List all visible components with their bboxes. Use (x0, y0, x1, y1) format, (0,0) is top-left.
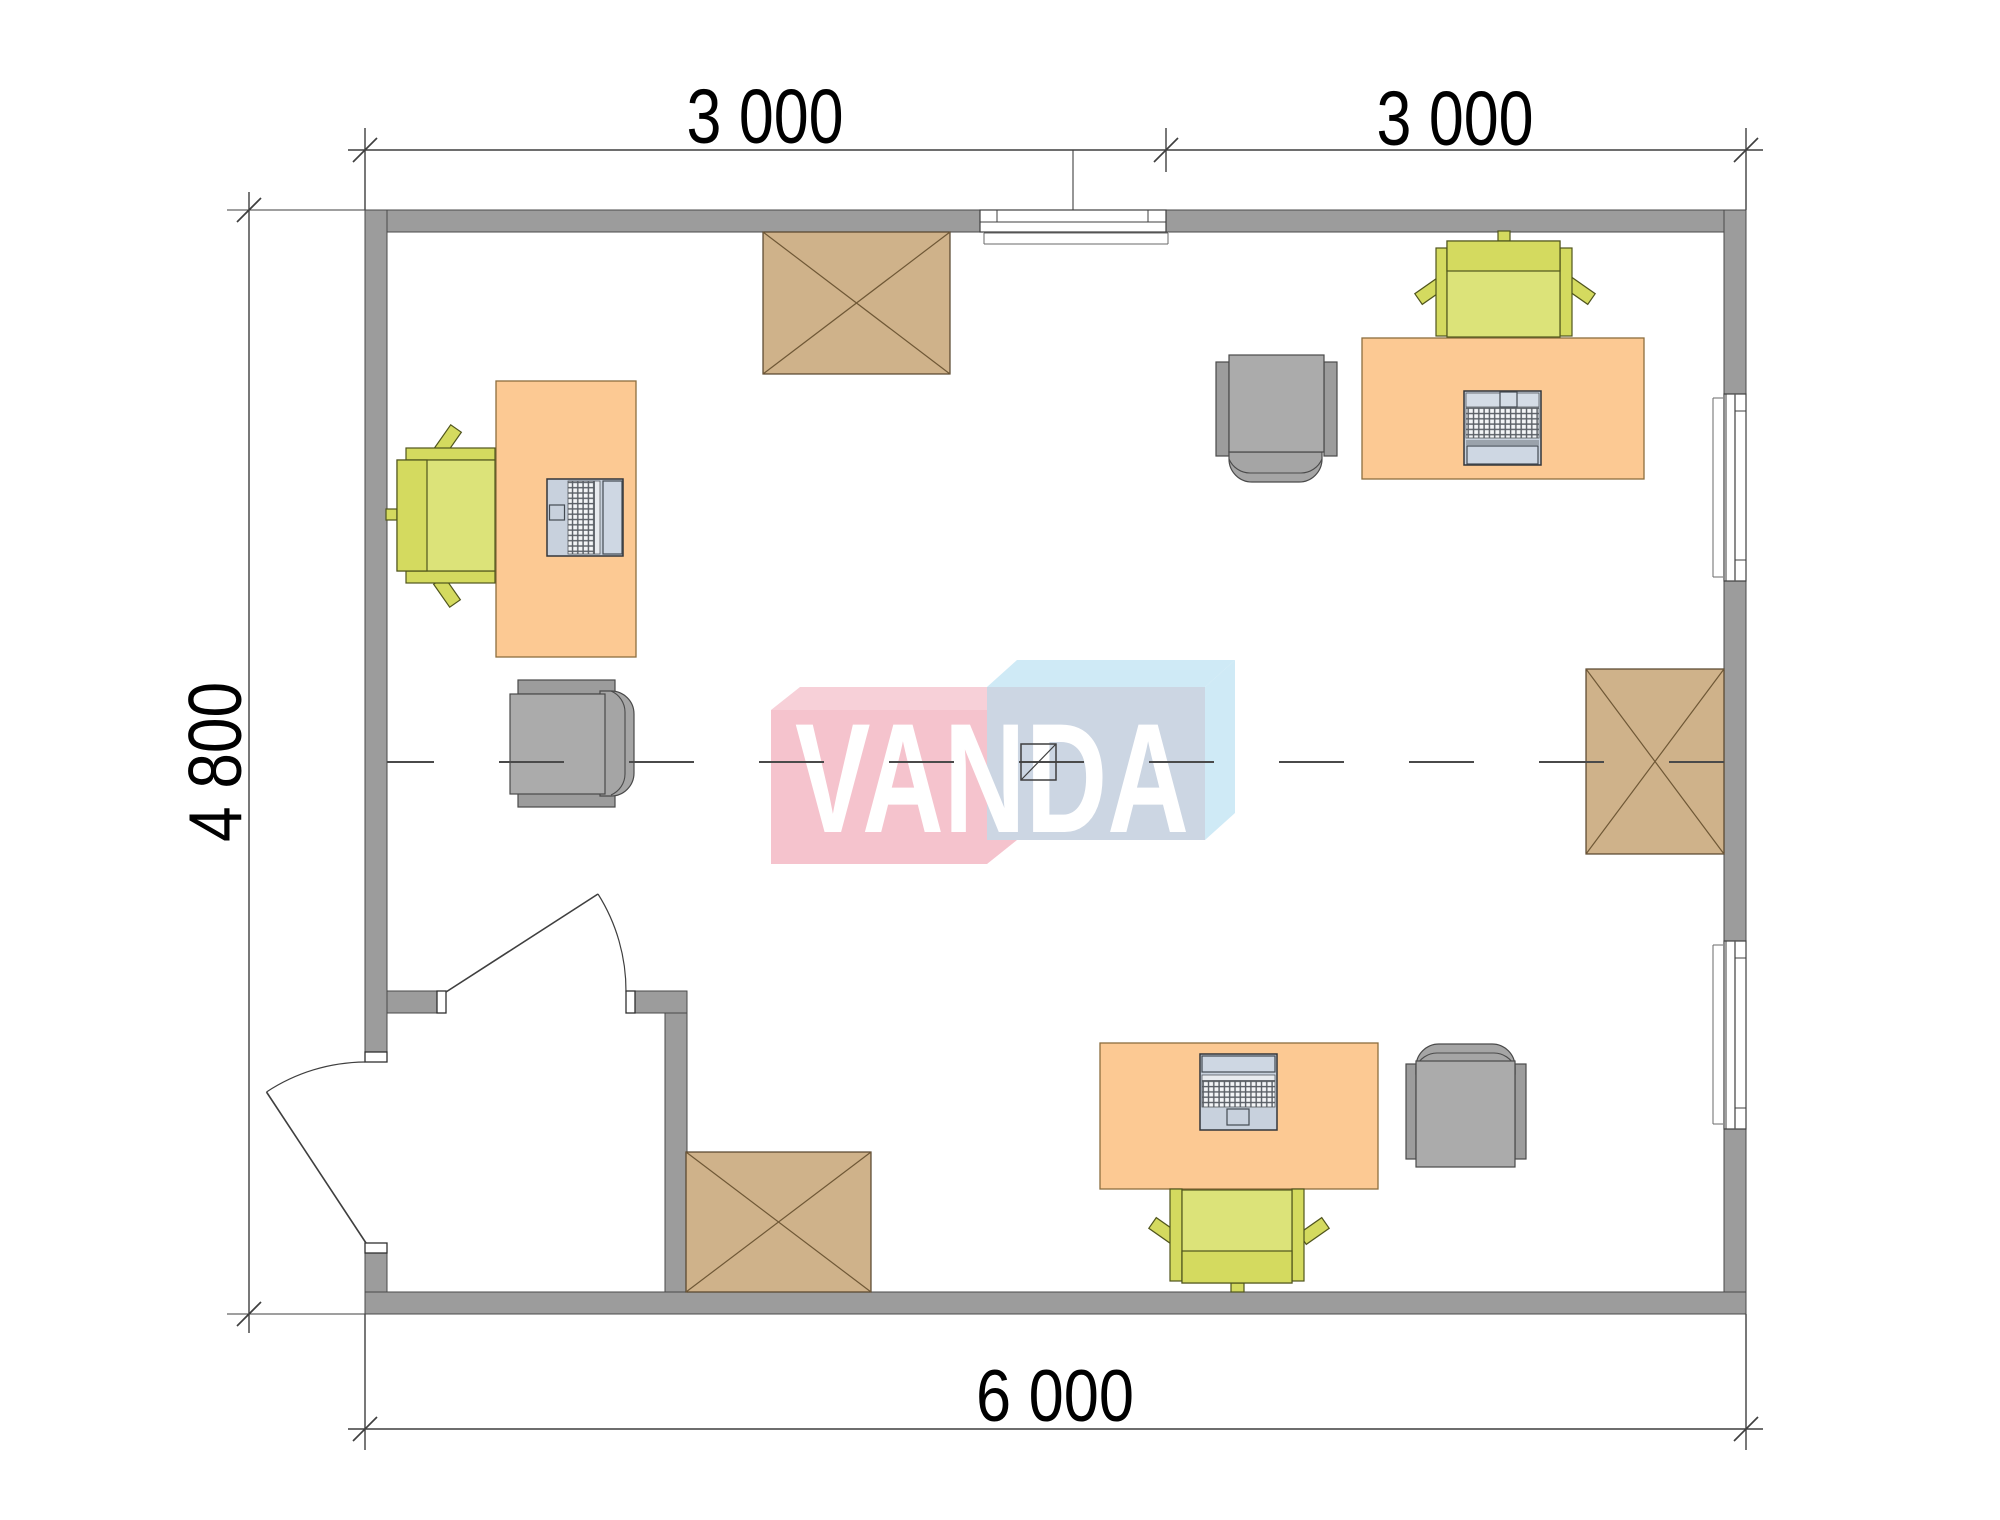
svg-text:3 000: 3 000 (1377, 76, 1534, 162)
svg-text:3 000: 3 000 (687, 74, 844, 160)
svg-text:VANDA: VANDA (795, 692, 1189, 866)
svg-text:4 800: 4 800 (173, 682, 257, 842)
svg-text:6 000: 6 000 (976, 1356, 1134, 1437)
